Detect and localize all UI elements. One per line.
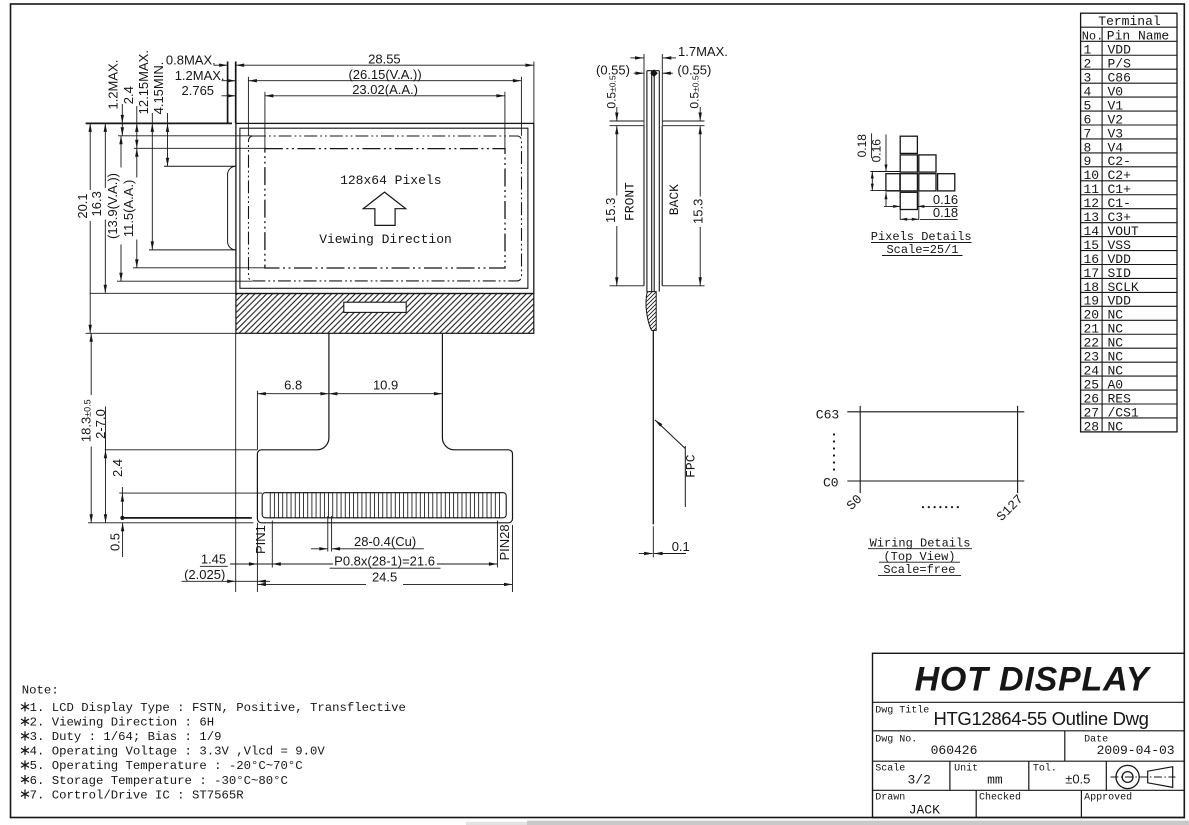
svg-text:(0.55): (0.55) (596, 62, 630, 77)
svg-text:10.9: 10.9 (373, 377, 398, 392)
svg-text:±0.5: ±0.5 (1065, 771, 1090, 786)
svg-text:PIN1: PIN1 (253, 525, 268, 554)
svg-text:1.45: 1.45 (201, 551, 226, 566)
svg-text:V3: V3 (1108, 126, 1124, 141)
svg-text:Scale: Scale (875, 763, 905, 775)
svg-text:2009-04-03: 2009-04-03 (1097, 743, 1175, 758)
svg-text:2.4: 2.4 (110, 459, 125, 477)
svg-text:P/S: P/S (1108, 57, 1132, 72)
svg-text:NC: NC (1108, 419, 1124, 434)
svg-text:16.3: 16.3 (89, 191, 104, 216)
svg-text:0.5: 0.5 (108, 533, 123, 551)
svg-text:Scale=25/1: Scale=25/1 (886, 243, 958, 257)
svg-text:(26.15(V.A.)): (26.15(V.A.)) (348, 67, 421, 82)
svg-text:(2.025): (2.025) (184, 567, 225, 582)
svg-text:Wiring Details: Wiring Details (870, 536, 971, 550)
svg-text:24: 24 (1084, 363, 1100, 378)
svg-text:NC: NC (1108, 336, 1124, 351)
svg-text:0.1: 0.1 (672, 539, 690, 554)
svg-text:Approved: Approved (1084, 792, 1132, 804)
svg-text:NC: NC (1108, 322, 1124, 337)
svg-text:Scale=free: Scale=free (883, 563, 955, 577)
svg-text:10: 10 (1084, 168, 1100, 183)
svg-text:(Top View): (Top View) (883, 550, 955, 564)
svg-text:13: 13 (1084, 210, 1100, 225)
svg-text:JACK: JACK (909, 802, 940, 817)
svg-text:SID: SID (1108, 266, 1132, 281)
svg-text:3/2: 3/2 (908, 772, 931, 787)
svg-text:VOUT: VOUT (1108, 224, 1139, 239)
svg-text:1.7MAX.: 1.7MAX. (678, 44, 728, 59)
svg-text:Unit: Unit (954, 763, 978, 775)
svg-text:12: 12 (1084, 196, 1100, 211)
svg-text:1. LCD Display Type : FSTN, Po: 1. LCD Display Type : FSTN, Positive, Tr… (30, 701, 406, 715)
svg-text:No.: No. (1082, 30, 1104, 44)
svg-text:15.3: 15.3 (691, 199, 706, 224)
svg-text:28: 28 (1084, 419, 1100, 434)
svg-text:6. Storage Temperature : -30°C: 6. Storage Temperature : -30°C~80°C (30, 774, 288, 788)
svg-text:0.16: 0.16 (869, 139, 883, 163)
svg-text:11.5(A.A.): 11.5(A.A.) (121, 180, 136, 238)
svg-text:Checked: Checked (979, 792, 1021, 804)
svg-text:0.18: 0.18 (933, 205, 958, 220)
svg-text:FPC: FPC (684, 454, 699, 478)
svg-text:25: 25 (1084, 377, 1100, 392)
svg-text:NC: NC (1108, 350, 1124, 365)
svg-text:6.8: 6.8 (284, 377, 302, 392)
svg-text:2.765: 2.765 (182, 83, 215, 98)
svg-text:060426: 060426 (931, 743, 978, 758)
svg-text:2.4: 2.4 (121, 86, 136, 104)
svg-text:3: 3 (1084, 71, 1092, 86)
svg-text:4.15MIN.: 4.15MIN. (151, 62, 166, 115)
svg-text:V1: V1 (1108, 98, 1124, 113)
svg-text:16: 16 (1084, 252, 1100, 267)
svg-text:14: 14 (1084, 224, 1100, 239)
svg-text:2. Viewing Direction : 6H: 2. Viewing Direction : 6H (30, 716, 214, 730)
svg-text:V2: V2 (1108, 112, 1124, 127)
svg-text:7: 7 (1084, 126, 1092, 141)
svg-text:HOT DISPLAY: HOT DISPLAY (915, 661, 1152, 699)
svg-text:C1-: C1- (1108, 196, 1131, 211)
svg-text:Tol.: Tol. (1033, 763, 1057, 775)
svg-text:6: 6 (1084, 112, 1092, 127)
svg-text:NC: NC (1108, 308, 1124, 323)
svg-text:Note:: Note: (22, 684, 59, 698)
svg-text:C2-: C2- (1108, 154, 1131, 169)
svg-text:VSS: VSS (1108, 238, 1132, 253)
svg-text:V4: V4 (1108, 140, 1124, 155)
svg-text:NC: NC (1108, 363, 1124, 378)
svg-text:Dwg No.: Dwg No. (875, 735, 917, 746)
svg-text:27: 27 (1084, 405, 1100, 420)
svg-text:Pixels Details: Pixels Details (871, 230, 972, 244)
svg-text:26: 26 (1084, 391, 1100, 406)
svg-text:7. Cortrol/Drive IC : ST7565R: 7. Cortrol/Drive IC : ST7565R (30, 788, 245, 802)
svg-text:Viewing Direction: Viewing Direction (319, 232, 452, 247)
svg-text:2: 2 (1084, 57, 1092, 72)
svg-text:C2+: C2+ (1108, 168, 1132, 183)
svg-text:2-7.0: 2-7.0 (93, 409, 108, 439)
svg-text:/CS1: /CS1 (1108, 405, 1139, 420)
svg-text:15: 15 (1084, 238, 1100, 253)
svg-text:HTG12864-55 Outline Dwg: HTG12864-55 Outline Dwg (933, 708, 1148, 729)
svg-text:28-0.4(Cu): 28-0.4(Cu) (354, 534, 416, 549)
svg-text:128x64 Pixels: 128x64 Pixels (340, 173, 441, 188)
svg-text:BACK: BACK (667, 184, 682, 215)
svg-text:Drawn: Drawn (875, 793, 905, 804)
svg-text:22: 22 (1084, 336, 1100, 351)
svg-text:9: 9 (1084, 154, 1092, 169)
svg-text:(0.55): (0.55) (677, 62, 711, 77)
svg-text:5. Operating Temperature : -20: 5. Operating Temperature : -20°C~70°C (30, 759, 303, 773)
svg-text:1.2MAX.: 1.2MAX. (105, 60, 120, 110)
svg-text:P0.8x(28-1)=21.6: P0.8x(28-1)=21.6 (334, 554, 435, 569)
svg-text:15.3: 15.3 (603, 198, 618, 223)
svg-text:VDD: VDD (1108, 43, 1132, 58)
svg-text:C86: C86 (1108, 71, 1131, 86)
svg-text:PIN28: PIN28 (497, 524, 512, 560)
svg-text:0.5±0.5: 0.5±0.5 (688, 75, 702, 108)
svg-text:C0: C0 (823, 476, 839, 491)
svg-text:11: 11 (1084, 182, 1100, 197)
svg-text:A0: A0 (1108, 377, 1124, 392)
svg-text:Terminal: Terminal (1098, 14, 1161, 29)
svg-text:1.2MAX.: 1.2MAX. (175, 68, 225, 83)
svg-text:4: 4 (1084, 84, 1092, 99)
svg-text:C3+: C3+ (1108, 210, 1132, 225)
svg-text:5: 5 (1084, 98, 1092, 113)
svg-text:C1+: C1+ (1108, 182, 1132, 197)
svg-text:3. Duty : 1/64; Bias : 1/9: 3. Duty : 1/64; Bias : 1/9 (30, 730, 222, 744)
svg-text:1: 1 (1084, 43, 1092, 58)
svg-text:C63: C63 (816, 407, 839, 422)
svg-text:4. Operating Voltage : 3.3V ,V: 4. Operating Voltage : 3.3V ,Vlcd = 9.0V (30, 745, 326, 759)
svg-text:Dwg Title: Dwg Title (875, 705, 929, 717)
svg-text:20: 20 (1084, 308, 1100, 323)
svg-text:mm: mm (987, 772, 1003, 787)
svg-text:FRONT: FRONT (623, 182, 638, 221)
svg-text:12.15MAX.: 12.15MAX. (136, 50, 151, 114)
svg-text:0.8MAX.: 0.8MAX. (166, 53, 216, 68)
svg-text:Pin Name: Pin Name (1107, 29, 1169, 44)
svg-text:19: 19 (1084, 294, 1100, 309)
svg-text:V0: V0 (1108, 84, 1124, 99)
svg-text:RES: RES (1108, 391, 1132, 406)
svg-text:23.02(A.A.): 23.02(A.A.) (352, 82, 418, 97)
svg-text:21: 21 (1084, 322, 1100, 337)
svg-text:0.18: 0.18 (855, 134, 869, 158)
svg-text:0.5±0.5: 0.5±0.5 (604, 75, 618, 108)
svg-text:VDD: VDD (1108, 252, 1132, 267)
svg-text:18: 18 (1084, 280, 1100, 295)
svg-text:24.5: 24.5 (372, 570, 397, 585)
svg-text:SCLK: SCLK (1108, 280, 1139, 295)
svg-text:(13.9(V.A.)): (13.9(V.A.)) (105, 173, 120, 239)
svg-text:23: 23 (1084, 350, 1100, 365)
svg-text:20.1: 20.1 (75, 193, 90, 218)
svg-text:8: 8 (1084, 140, 1092, 155)
svg-text:28.55: 28.55 (368, 52, 401, 67)
svg-text:17: 17 (1084, 266, 1100, 281)
svg-text:VDD: VDD (1108, 294, 1132, 309)
